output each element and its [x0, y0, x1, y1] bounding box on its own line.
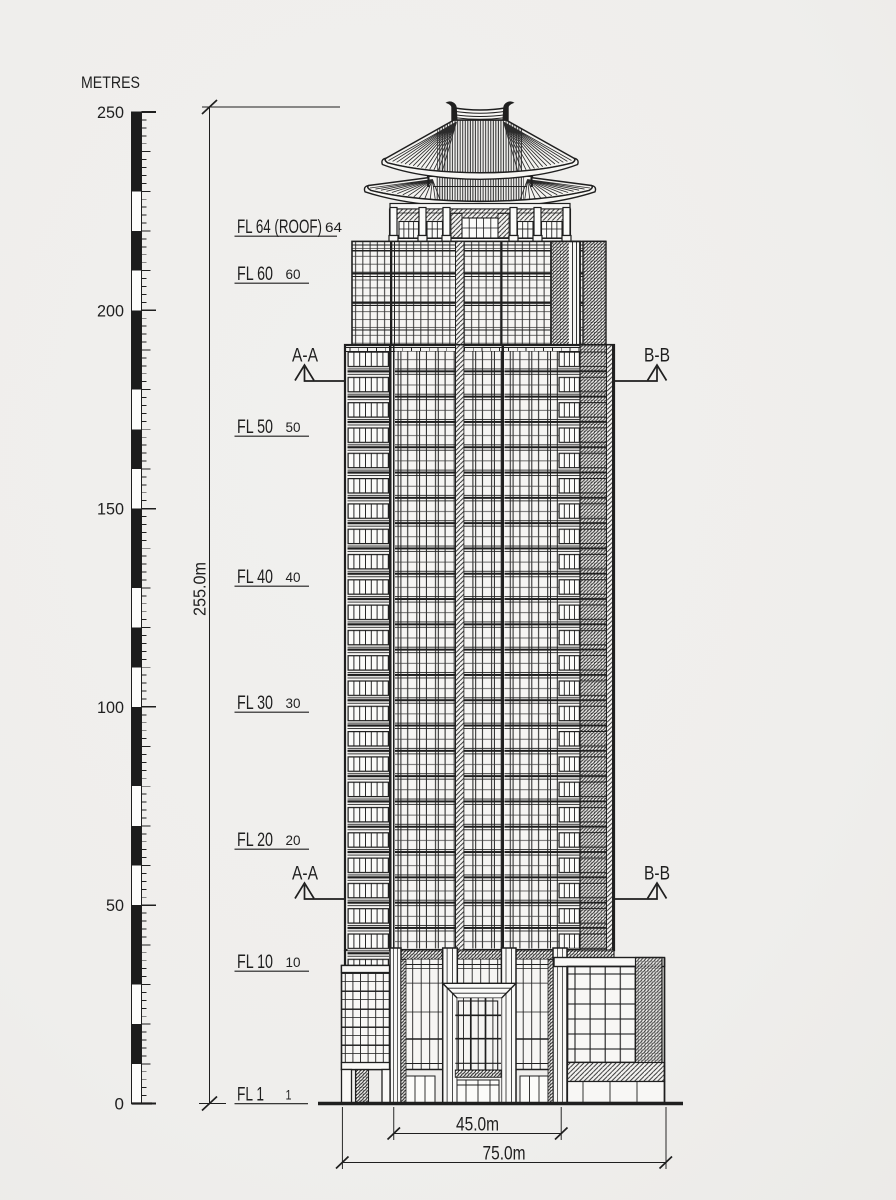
svg-text:FL 30: FL 30	[237, 693, 273, 714]
svg-text:10: 10	[286, 954, 301, 970]
svg-text:0: 0	[115, 1095, 124, 1114]
svg-text:50: 50	[286, 419, 301, 435]
svg-text:A-A: A-A	[292, 346, 318, 367]
svg-text:FL 60: FL 60	[237, 264, 273, 285]
svg-text:150: 150	[97, 500, 124, 519]
svg-text:FL 1: FL 1	[237, 1085, 264, 1106]
svg-text:B-B: B-B	[644, 346, 670, 367]
svg-text:100: 100	[97, 698, 124, 717]
svg-text:50: 50	[106, 896, 124, 915]
svg-text:60: 60	[286, 266, 301, 282]
svg-text:A-A: A-A	[292, 864, 318, 885]
svg-text:FL 50: FL 50	[237, 417, 273, 438]
svg-text:20: 20	[286, 832, 301, 848]
svg-text:FL 40: FL 40	[237, 567, 273, 588]
svg-text:75.0m: 75.0m	[483, 1144, 526, 1165]
svg-text:45.0m: 45.0m	[456, 1115, 499, 1136]
svg-text:FL 64 (ROOF): FL 64 (ROOF)	[237, 217, 322, 238]
svg-text:200: 200	[97, 301, 124, 320]
svg-text:30: 30	[286, 695, 301, 711]
svg-text:METRES: METRES	[81, 73, 140, 92]
svg-text:40: 40	[286, 569, 301, 585]
svg-text:255.0m: 255.0m	[190, 562, 210, 616]
svg-text:FL 10: FL 10	[237, 952, 273, 973]
svg-text:250: 250	[97, 103, 124, 122]
svg-text:FL 20: FL 20	[237, 830, 273, 851]
svg-text:1: 1	[286, 1087, 292, 1103]
svg-text:64: 64	[325, 219, 342, 235]
svg-text:B-B: B-B	[644, 864, 670, 885]
